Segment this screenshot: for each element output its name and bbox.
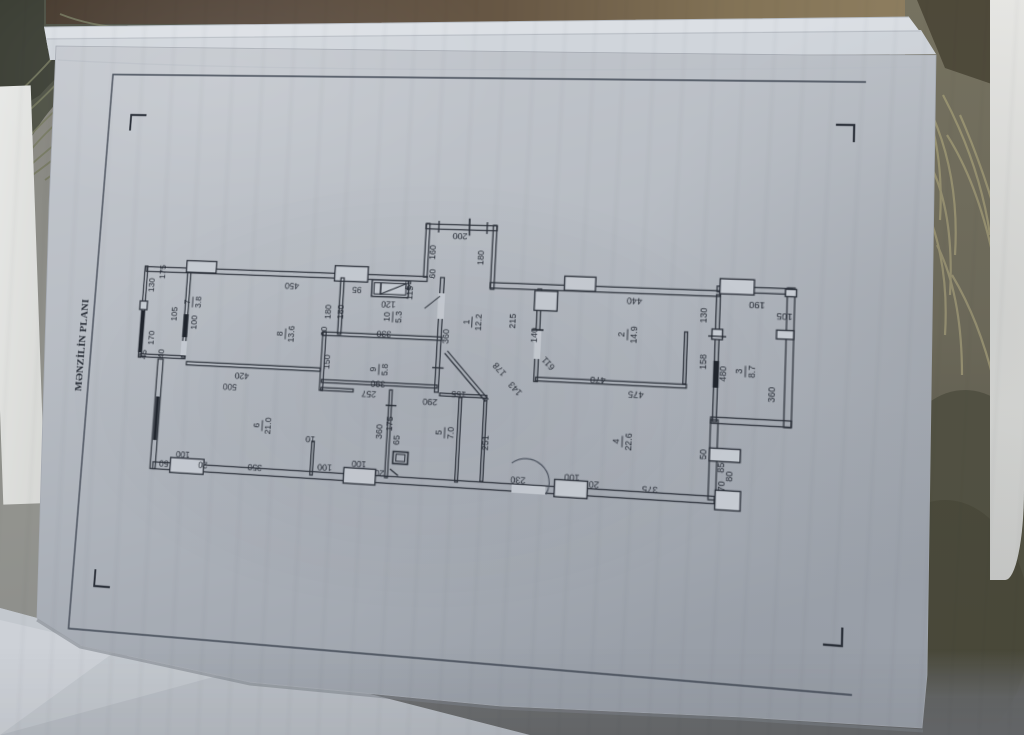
svg-text:170: 170: [146, 330, 157, 345]
svg-text:100: 100: [563, 472, 579, 484]
svg-text:350: 350: [247, 462, 262, 474]
svg-text:150: 150: [321, 354, 332, 370]
svg-text:60: 60: [318, 326, 329, 337]
svg-text:10: 10: [383, 311, 393, 321]
svg-text:290: 290: [422, 396, 438, 408]
svg-text:40: 40: [156, 349, 167, 359]
svg-text:105: 105: [169, 306, 180, 321]
svg-text:45: 45: [138, 349, 149, 359]
svg-text:215: 215: [507, 313, 519, 329]
svg-text:470: 470: [590, 374, 606, 386]
svg-text:251: 251: [479, 435, 491, 451]
svg-text:155: 155: [450, 389, 466, 401]
svg-text:95: 95: [351, 285, 362, 296]
svg-text:12.2: 12.2: [473, 313, 484, 331]
svg-text:180: 180: [322, 304, 333, 319]
svg-text:50: 50: [158, 458, 168, 469]
svg-text:5: 5: [434, 429, 444, 435]
svg-text:360: 360: [440, 328, 451, 344]
svg-text:100: 100: [175, 449, 190, 460]
svg-text:5.3: 5.3: [394, 311, 404, 324]
svg-text:20: 20: [588, 479, 599, 491]
svg-text:10: 10: [305, 434, 316, 445]
svg-text:500: 500: [222, 381, 237, 392]
svg-text:480: 480: [716, 366, 728, 382]
svg-text:50: 50: [697, 448, 709, 459]
svg-text:3.8: 3.8: [194, 296, 204, 308]
svg-text:100: 100: [317, 462, 333, 474]
svg-text:4: 4: [612, 438, 622, 444]
svg-text:230: 230: [510, 474, 526, 486]
svg-text:8: 8: [276, 331, 286, 337]
svg-text:160: 160: [427, 244, 438, 259]
svg-text:475: 475: [627, 389, 643, 401]
svg-text:14.9: 14.9: [629, 326, 640, 344]
svg-text:20: 20: [197, 460, 208, 471]
svg-text:100: 100: [351, 458, 367, 470]
svg-text:611: 611: [539, 354, 557, 372]
svg-text:390: 390: [370, 378, 386, 389]
svg-text:7: 7: [183, 299, 192, 304]
svg-text:257: 257: [361, 388, 377, 399]
svg-text:70: 70: [715, 480, 727, 492]
svg-text:440: 440: [626, 295, 642, 306]
svg-text:100: 100: [188, 315, 199, 330]
svg-text:360: 360: [765, 386, 777, 403]
svg-text:60: 60: [427, 268, 438, 279]
svg-text:130: 130: [698, 307, 710, 323]
svg-text:330: 330: [376, 329, 392, 340]
svg-text:120: 120: [380, 299, 396, 310]
svg-text:180: 180: [475, 250, 486, 265]
svg-text:7.0: 7.0: [446, 426, 456, 439]
svg-text:140: 140: [528, 327, 540, 343]
svg-text:22.6: 22.6: [624, 432, 635, 451]
svg-text:21.0: 21.0: [264, 417, 274, 435]
svg-text:375: 375: [641, 484, 658, 496]
svg-text:13.6: 13.6: [287, 325, 297, 342]
svg-text:115: 115: [404, 285, 415, 300]
svg-text:8.7: 8.7: [747, 365, 758, 379]
svg-text:65: 65: [391, 434, 402, 445]
svg-text:105: 105: [776, 311, 793, 323]
svg-text:2: 2: [617, 331, 627, 337]
svg-text:175: 175: [157, 264, 168, 279]
svg-text:1: 1: [462, 319, 472, 325]
svg-text:200: 200: [452, 231, 468, 242]
svg-text:143: 143: [506, 379, 525, 398]
svg-text:20: 20: [374, 468, 385, 479]
svg-text:420: 420: [234, 371, 249, 382]
svg-text:180: 180: [335, 304, 346, 319]
svg-text:3: 3: [735, 368, 746, 374]
svg-text:175: 175: [384, 416, 395, 432]
svg-text:6: 6: [252, 422, 262, 428]
svg-text:158: 158: [697, 354, 709, 370]
svg-text:9: 9: [369, 366, 379, 372]
svg-text:190: 190: [748, 300, 765, 312]
svg-text:178: 178: [490, 360, 508, 379]
svg-text:130: 130: [146, 277, 157, 292]
svg-text:450: 450: [284, 281, 299, 292]
svg-text:5.8: 5.8: [380, 363, 390, 376]
